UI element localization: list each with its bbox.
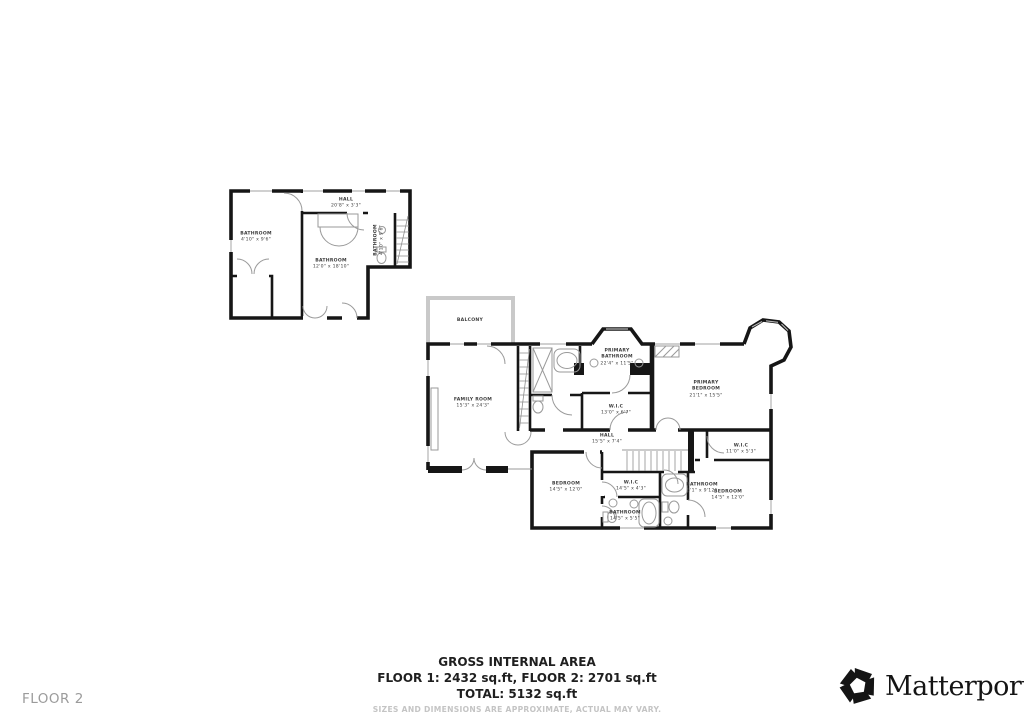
room-label-wic-2: W.I.C11'0" x 5'3" bbox=[726, 444, 756, 457]
bathroom-d-fixtures bbox=[662, 474, 687, 525]
floorplan-drawing bbox=[0, 0, 1024, 724]
room-label-hall-main: HALL15'5" x 7'4" bbox=[592, 434, 622, 447]
toilet-primary bbox=[533, 396, 543, 413]
per-floor-areas: FLOOR 1: 2432 sq.ft, FLOOR 2: 2701 sq.ft bbox=[373, 671, 662, 687]
room-label-primary-bedroom: PRIMARY BEDROOM21'1" x 15'5" bbox=[683, 380, 729, 399]
matterport-logo: Matterport® bbox=[838, 666, 1024, 706]
room-label-family-room: FAMILY ROOM15'3" x 24'3" bbox=[454, 398, 492, 411]
room-label-wic-1: W.I.C13'0" x 6'7" bbox=[601, 405, 631, 418]
total-area: TOTAL: 5132 sq.ft bbox=[373, 687, 662, 703]
door-arc bbox=[284, 193, 302, 211]
room-label-primary-bathroom: PRIMARY BATHROOM22'4" x 11'5" bbox=[594, 348, 640, 367]
shower-stall bbox=[533, 348, 552, 392]
room-label-hall-upper: HALL20'8" x 3'3" bbox=[331, 198, 361, 211]
floor-indicator: FLOOR 2 bbox=[22, 691, 84, 707]
stairs-main-down bbox=[622, 450, 688, 471]
room-label-wic-3: W.I.C14'5" x 4'3" bbox=[616, 481, 646, 494]
gross-area-summary: GROSS INTERNAL AREA FLOOR 1: 2432 sq.ft,… bbox=[373, 655, 662, 714]
fireplace-nook bbox=[431, 388, 438, 450]
stairs-main-upper bbox=[519, 349, 530, 428]
room-label-bathroom-3: BATHROOM4'10" x 9'6" bbox=[374, 224, 387, 256]
disclaimer-text: SIZES AND DIMENSIONS ARE APPROXIMATE, AC… bbox=[373, 705, 662, 714]
room-label-bathroom-1: BATHROOM4'10" x 9'6" bbox=[240, 232, 272, 245]
room-label-bedroom-1: BEDROOM14'5" x 12'0" bbox=[549, 482, 582, 495]
floorplan-canvas: BATHROOM4'10" x 9'6" HALL20'8" x 3'3" BA… bbox=[0, 0, 1024, 724]
room-label-bedroom-2: BEDROOM14'5" x 12'0" bbox=[711, 490, 744, 503]
gross-area-title: GROSS INTERNAL AREA bbox=[373, 655, 662, 671]
room-label-balcony: BALCONY bbox=[457, 318, 483, 324]
room-label-bathroom-2: BATHROOM12'0" x 18'10" bbox=[313, 259, 349, 272]
door-arcs-main bbox=[462, 346, 724, 519]
room-label-bathroom-5: BATHROOM14'5" x 5'5" bbox=[609, 511, 641, 524]
brand-wordmark: Matterport bbox=[885, 671, 1024, 702]
window-bench bbox=[655, 346, 679, 357]
matterport-pinwheel-icon bbox=[838, 666, 878, 706]
stairs-upper bbox=[396, 216, 409, 264]
